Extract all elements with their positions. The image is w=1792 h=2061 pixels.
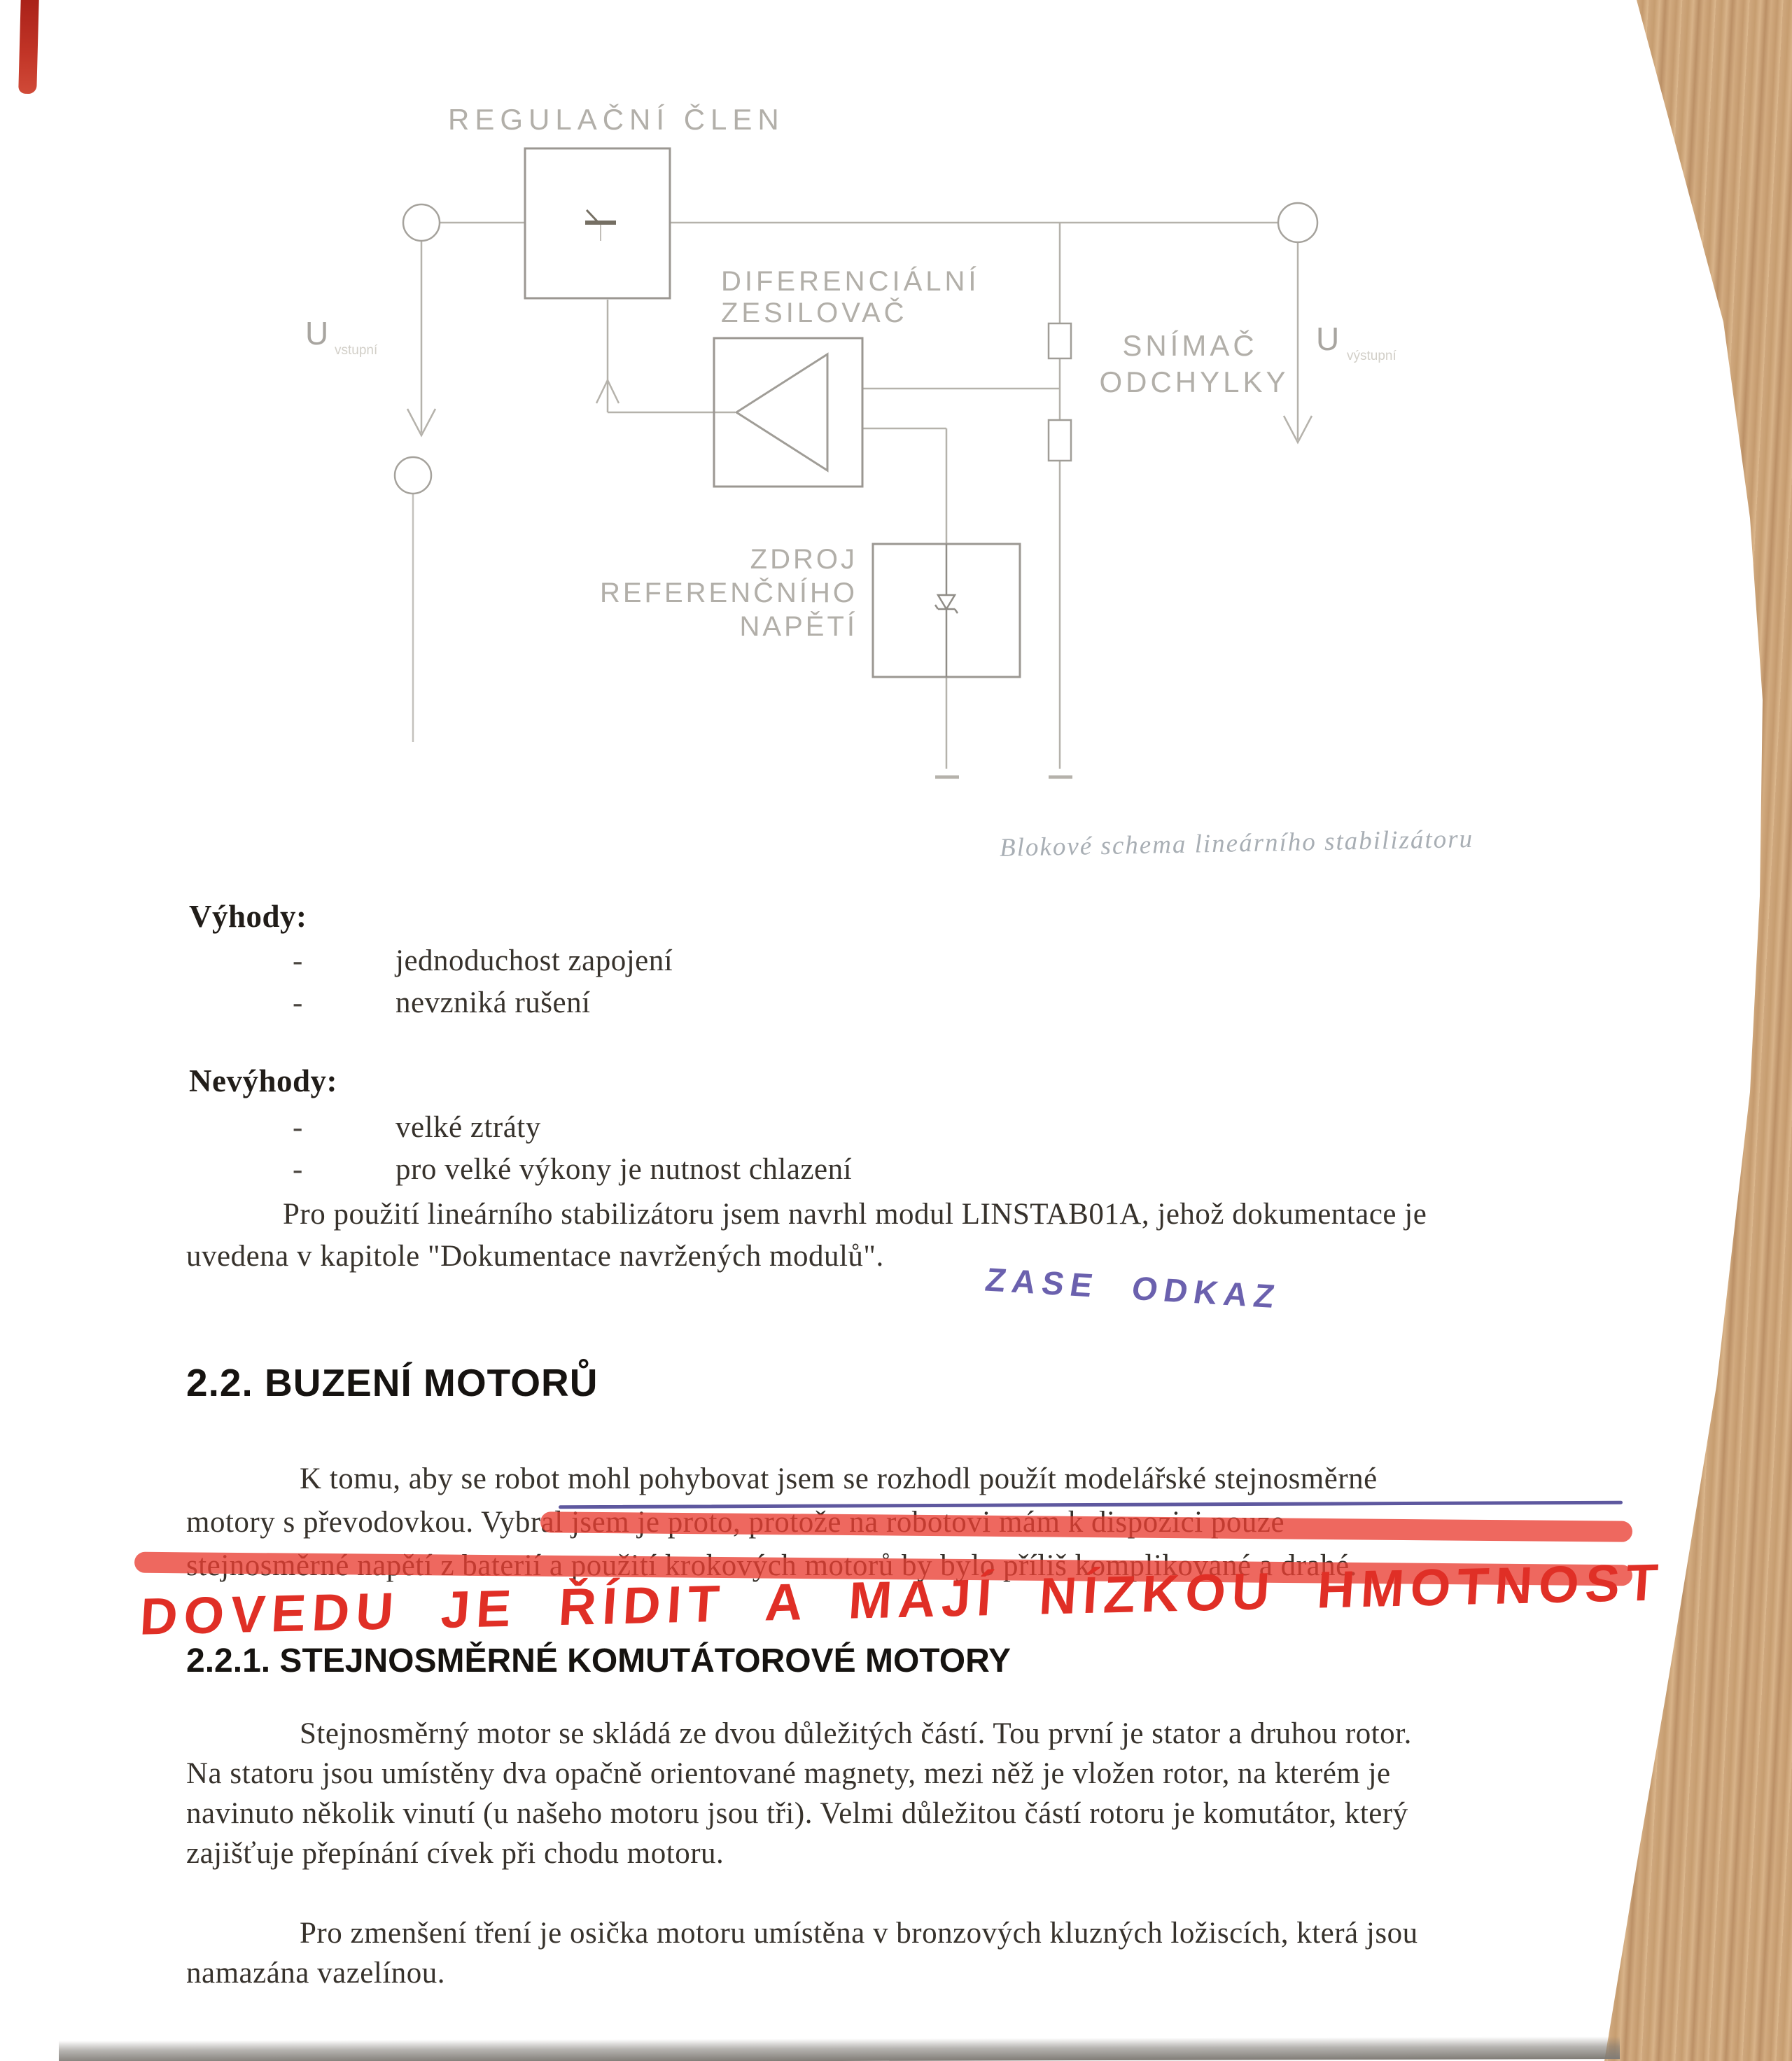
- paragraph-line: zajišťuje přepínání cívek při chodu moto…: [186, 1836, 724, 1871]
- transistor-symbol: [585, 210, 616, 241]
- handwritten-blue-note: ZASE ODKAZ: [983, 1260, 1284, 1316]
- u-input-label: U: [305, 315, 328, 351]
- opamp-triangle-icon: [736, 354, 827, 470]
- scan-bottom-shadow: [59, 2036, 1620, 2061]
- paragraph-line: navinuto několik vinutí (u našeho motoru…: [186, 1796, 1408, 1831]
- sensor-resistor-top: [1049, 323, 1071, 358]
- list-bullet: -: [293, 944, 395, 978]
- output-terminal: [1278, 203, 1317, 242]
- section-heading-2-2: 2.2. BUZENÍ MOTORŮ: [186, 1360, 598, 1405]
- input-terminal-top: [403, 204, 440, 241]
- list-item: -jednoduchost zapojení: [293, 944, 673, 978]
- input-terminal-bottom: [395, 457, 431, 494]
- list-item: -velké ztráty: [293, 1110, 541, 1145]
- paragraph-line: namazána vazelínou.: [186, 1956, 445, 1990]
- list-bullet: -: [293, 986, 395, 1020]
- diff-amp-label-line1: DIFERENCIÁLNÍ: [721, 265, 980, 297]
- section-heading-2-2-1: 2.2.1. STEJNOSMĚRNÉ KOMUTÁTOROVÉ MOTORY: [186, 1642, 1011, 1680]
- advantages-title: Výhody:: [189, 898, 307, 935]
- sensor-label-line1: SNÍMAČ: [1122, 329, 1257, 362]
- u-input-subscript: vstupní: [335, 343, 378, 358]
- list-item-text: jednoduchost zapojení: [395, 944, 673, 977]
- paragraph-line: uvedena v kapitole "Dokumentace navržený…: [186, 1239, 884, 1273]
- reference-label-line3: NAPĚTÍ: [740, 610, 857, 642]
- list-bullet: -: [293, 1152, 395, 1187]
- scanned-document-page: REGULAČNÍ ČLEN DIFERENCIÁLNÍ ZESILOVAČ S…: [0, 0, 1792, 2061]
- list-item: -pro velké výkony je nutnost chlazení: [293, 1152, 852, 1187]
- reference-label-line2: REFERENČNÍHO: [600, 577, 857, 608]
- zener-diode-icon: [935, 544, 958, 677]
- list-item: -nevzniká rušení: [293, 986, 591, 1020]
- diff-amp-label-line2: ZESILOVAČ: [721, 297, 908, 328]
- sensor-label-line2: ODCHYLKY: [1099, 365, 1289, 398]
- paragraph-line: Stejnosměrný motor se skládá ze dvou důl…: [300, 1717, 1412, 1751]
- sensor-resistor-bottom: [1049, 420, 1071, 461]
- paragraph-line: Pro použití lineárního stabilizátoru jse…: [283, 1197, 1427, 1231]
- paragraph-line: Pro zmenšení tření je osička motoru umís…: [300, 1916, 1418, 1950]
- linear-stabilizer-block-diagram: REGULAČNÍ ČLEN DIFERENCIÁLNÍ ZESILOVAČ S…: [0, 0, 1792, 875]
- paragraph-line: Na statoru jsou umístěny dva opačně orie…: [186, 1756, 1391, 1791]
- u-output-subscript: výstupní: [1347, 349, 1396, 363]
- paragraph-line: K tomu, aby se robot mohl pohybovat jsem…: [300, 1462, 1378, 1496]
- regulator-label: REGULAČNÍ ČLEN: [448, 103, 785, 136]
- disadvantages-title: Nevýhody:: [189, 1063, 337, 1099]
- list-item-text: pro velké výkony je nutnost chlazení: [395, 1153, 852, 1186]
- list-item-text: velké ztráty: [395, 1111, 541, 1144]
- list-item-text: nevzniká rušení: [395, 986, 591, 1019]
- reference-label-line1: ZDROJ: [750, 544, 857, 575]
- list-bullet: -: [293, 1110, 395, 1145]
- u-output-label: U: [1316, 321, 1339, 357]
